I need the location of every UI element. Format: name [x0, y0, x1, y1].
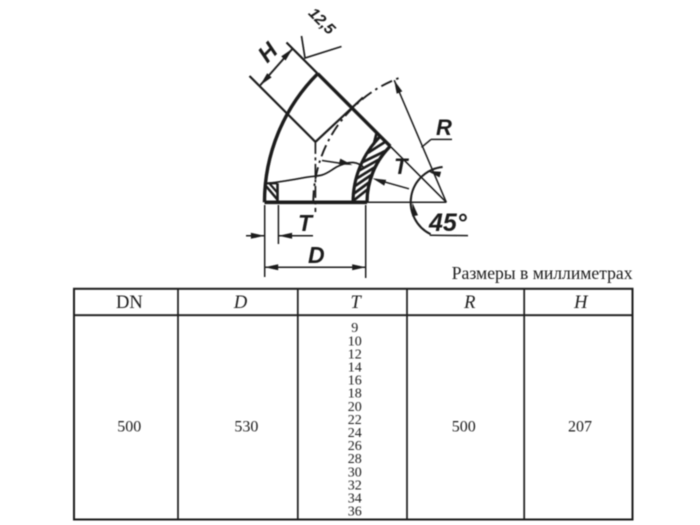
svg-text:T: T — [298, 210, 314, 236]
svg-text:500: 500 — [117, 419, 141, 436]
svg-text:DN: DN — [116, 293, 143, 313]
svg-text:500: 500 — [452, 419, 476, 436]
svg-text:91012141618202224262830323436: 91012141618202224262830323436 — [348, 321, 362, 519]
svg-text:T: T — [351, 293, 363, 313]
svg-text:H: H — [573, 293, 589, 313]
svg-text:H: H — [252, 37, 282, 67]
svg-text:207: 207 — [568, 419, 592, 436]
svg-text:530: 530 — [234, 419, 258, 436]
svg-text:D: D — [233, 293, 248, 313]
svg-text:D: D — [308, 242, 325, 268]
svg-text:Размеры в миллиметрах: Размеры в миллиметрах — [452, 263, 633, 283]
svg-text:R: R — [463, 293, 475, 313]
svg-text:12,5: 12,5 — [305, 5, 339, 39]
svg-text:R: R — [436, 115, 452, 140]
svg-text:45°: 45° — [428, 209, 468, 237]
svg-text:T: T — [394, 154, 409, 179]
